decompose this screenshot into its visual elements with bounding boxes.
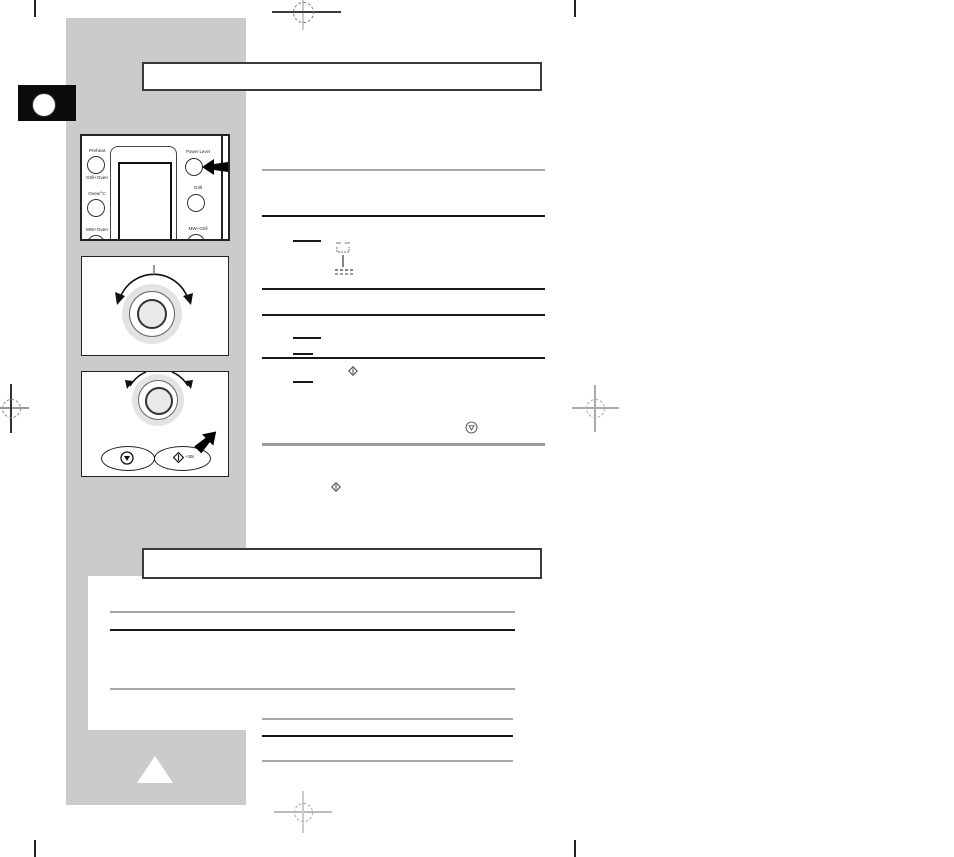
preheat-button — [87, 156, 105, 174]
rotate-arrows — [120, 372, 198, 394]
callout-arrow-start — [188, 430, 222, 460]
mw-oven-button — [87, 235, 105, 241]
step-underline-2 — [293, 337, 321, 339]
mw-grill-button — [187, 234, 205, 241]
rule-gray-5 — [262, 718, 513, 720]
grill-button-label: Grill — [184, 185, 212, 190]
start-symbol-inline-1 — [347, 365, 359, 377]
crop-mark-bottom-left — [34, 840, 36, 857]
rule-gray-3 — [110, 611, 515, 613]
stop-icon — [120, 451, 134, 465]
step-underline-1 — [293, 240, 321, 242]
stop-symbol-inline-1 — [465, 421, 478, 434]
grill-oven-button-label: Grill+Oven — [82, 175, 112, 180]
note-triangle — [137, 756, 173, 783]
crop-mark-top-right — [574, 0, 576, 17]
mw-oven-button-label: MW+Oven — [82, 227, 112, 232]
power-level-button — [185, 158, 203, 176]
manual-page: Preheat Grill+Oven Oven/°C MW+Oven Power… — [0, 0, 954, 857]
step-underline-4 — [293, 381, 313, 383]
callout-arrow-power-level — [202, 159, 228, 176]
power-level-button-label: Power Level — [179, 150, 217, 155]
rule-black-2 — [262, 288, 545, 290]
oven-temp-button — [87, 199, 105, 217]
section1-title-box — [142, 62, 542, 91]
display-indicator-pictogram — [333, 239, 355, 277]
rule-black-1 — [262, 215, 545, 217]
rotate-arrows — [110, 265, 196, 307]
mw-grill-button-label: MW+Grill — [181, 226, 215, 231]
rule-black-4 — [262, 357, 545, 359]
panel-edge-line — [221, 136, 223, 239]
rule-black-3 — [262, 314, 545, 316]
display-window-inner — [118, 162, 172, 241]
rule-gray-2 — [262, 443, 545, 446]
control-panel-figure: Preheat Grill+Oven Oven/°C MW+Oven Power… — [80, 134, 230, 241]
start-icon — [172, 451, 185, 464]
crop-mark-top-left — [34, 0, 36, 17]
oven-temp-button-label: Oven/°C — [82, 191, 112, 196]
dial-figure — [81, 256, 229, 356]
crop-mark-bottom-right — [574, 840, 576, 857]
section2-white-area — [88, 576, 548, 730]
rule-gray-6 — [262, 760, 513, 762]
section2-title-box — [142, 548, 542, 579]
grill-button — [187, 194, 205, 212]
chapter-circle-badge — [32, 93, 56, 117]
rule-gray-1 — [262, 169, 545, 171]
rule-gray-4 — [110, 688, 515, 690]
start-stop-figure: +30s — [81, 371, 229, 477]
step-underline-3 — [293, 353, 313, 355]
preheat-button-label: Preheat — [83, 148, 111, 153]
rule-black-6 — [262, 735, 513, 737]
start-symbol-inline-2 — [330, 481, 342, 493]
rule-black-5 — [110, 629, 515, 631]
